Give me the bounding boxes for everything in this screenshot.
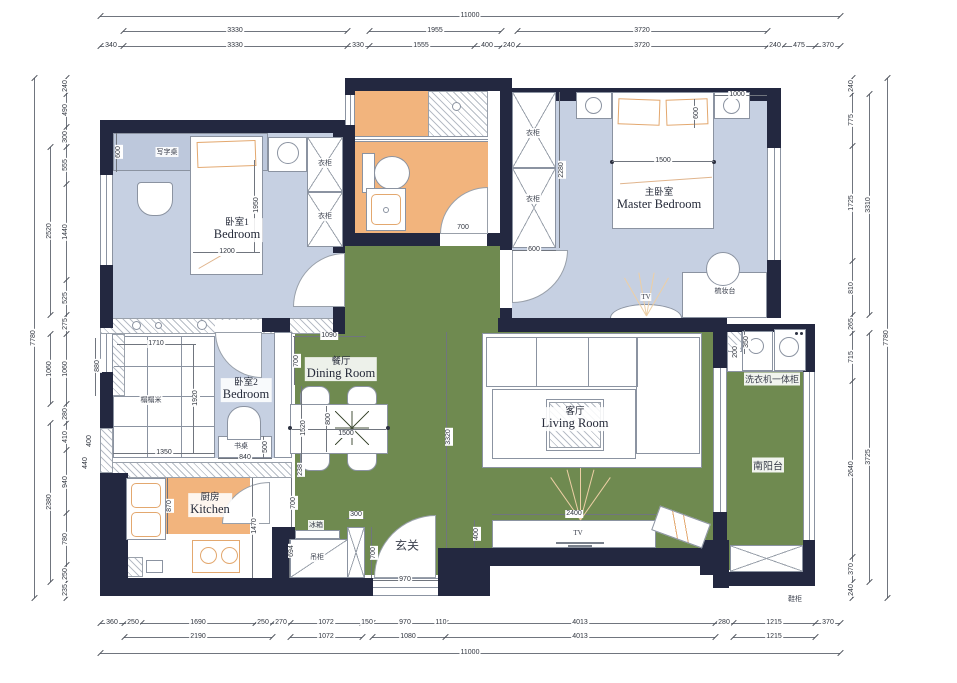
dimension-label: 440 xyxy=(82,456,90,470)
dimension-label: 11000 xyxy=(460,649,481,657)
floor-plan: 1100033301955372034033303301555400240372… xyxy=(0,0,957,683)
exterior-wall xyxy=(767,101,781,148)
dimension-label: 270 xyxy=(274,619,288,627)
room-label: 主卧室Master Bedroom xyxy=(615,188,703,212)
dimension-label: 370 xyxy=(848,562,856,576)
burner xyxy=(221,547,238,564)
window xyxy=(100,175,113,265)
dimension-label: 350 xyxy=(743,335,751,349)
room-label: 厨房Kitchen xyxy=(188,493,232,517)
sink-basin xyxy=(131,512,161,537)
pipe xyxy=(132,321,141,330)
dimension-label: 3330 xyxy=(226,42,244,50)
exterior-wall xyxy=(100,133,113,175)
burner xyxy=(200,547,217,564)
pillow xyxy=(666,98,709,125)
dimension-label: 370 xyxy=(821,619,835,627)
dimension-label: 870 xyxy=(166,499,174,513)
dimension-label: 240 xyxy=(768,42,782,50)
fixture-label: 吊柜 xyxy=(309,552,325,562)
shower-area xyxy=(428,91,488,140)
dimension-label: 800 xyxy=(325,412,333,426)
dimension-tick xyxy=(31,595,37,601)
exterior-wall xyxy=(100,372,113,428)
fixture-label: TV xyxy=(572,529,583,537)
balcony-slider-window xyxy=(713,368,727,512)
floor-hall-upper xyxy=(345,246,500,332)
room-name-en: Dining Room xyxy=(307,367,375,381)
dimension-label: 2400 xyxy=(565,510,583,518)
knob xyxy=(800,332,803,335)
exterior-wall xyxy=(100,120,345,133)
fixture-label: 冰箱 xyxy=(308,520,324,530)
fixture-label: 鞋柜 xyxy=(787,594,803,604)
dimension-tick xyxy=(47,401,53,407)
dimension-label: 200 xyxy=(732,345,740,359)
dimension-tick xyxy=(269,634,275,640)
dimension-tick xyxy=(812,634,818,640)
room-label: 餐厅Dining Room xyxy=(305,357,377,381)
dimension-tick xyxy=(884,595,890,601)
dimension-label: 970 xyxy=(398,619,412,627)
dimension-label: 780 xyxy=(62,532,70,546)
tall-cabinet xyxy=(347,527,365,578)
dimension-label: 880 xyxy=(94,359,102,373)
dim-dot xyxy=(386,426,390,430)
fridge-counter xyxy=(295,530,340,539)
dimension-label: 265 xyxy=(848,317,856,331)
dimension-label: 700 xyxy=(456,224,470,232)
sofa-chaise xyxy=(636,337,700,454)
fixture-label: TV xyxy=(640,293,651,301)
shoe-cabinet xyxy=(730,545,803,572)
window xyxy=(767,148,781,260)
dimension-label: 240 xyxy=(848,583,856,597)
dimension-label: 7780 xyxy=(883,329,891,347)
dimension-label: 694 xyxy=(288,544,296,558)
dimension-label: 238 xyxy=(297,463,305,477)
fixture-label: 玄关 xyxy=(394,537,420,554)
dimension-label: 300 xyxy=(349,511,363,519)
dimension-label: 1690 xyxy=(189,619,207,627)
dimension-label: 400 xyxy=(473,527,481,541)
dimension-label: 360 xyxy=(105,619,119,627)
room-label: 客厅Living Room xyxy=(539,407,610,431)
dimension-label: 110 xyxy=(434,619,447,627)
fixture-label: 洗衣机一体柜 xyxy=(744,373,800,386)
fixture-label: 衣柜 xyxy=(525,194,541,204)
dimension-label: 410 xyxy=(62,430,70,444)
dimension-tick xyxy=(837,620,843,626)
interior-wall xyxy=(500,91,512,250)
dimension-label: 1350 xyxy=(155,449,173,457)
dimension-label: 3320 xyxy=(445,428,453,446)
dimension-label: 1725 xyxy=(848,194,856,212)
tv xyxy=(556,542,604,544)
dimension-label: 1072 xyxy=(317,619,335,627)
dimension-label: 1470 xyxy=(251,517,259,535)
lamp xyxy=(585,97,602,114)
dimension-label: 11000 xyxy=(460,12,481,20)
dimension-label: 700 xyxy=(293,354,301,368)
dimension-label: 400 xyxy=(86,434,94,448)
room-name-en: Bedroom xyxy=(223,388,270,402)
dimension-label: 600 xyxy=(527,246,541,254)
dimension-label: 235 xyxy=(62,583,70,597)
dimension-label: 7780 xyxy=(30,329,38,347)
dimension-label: 2380 xyxy=(46,493,54,511)
dimension-label: 1500 xyxy=(654,157,672,165)
dimension-label: 525 xyxy=(62,291,70,305)
dimension-label: 2640 xyxy=(848,460,856,478)
fixture-label: 榻榻米 xyxy=(140,395,163,405)
dimension-label: 150 xyxy=(360,619,374,627)
dining-chair xyxy=(300,386,330,405)
dimension-tick xyxy=(837,43,843,49)
dimension-label: 1090 xyxy=(320,332,338,340)
dimension-label: 1520 xyxy=(300,419,308,437)
dimension-label: 275 xyxy=(62,317,70,331)
dimension-label: 1955 xyxy=(426,27,444,35)
dimension-tick xyxy=(837,650,843,656)
dimension-label: 1440 xyxy=(62,223,70,241)
kitchen-appliance xyxy=(146,560,163,573)
dimension-tick xyxy=(47,579,53,585)
dimension-label: 1072 xyxy=(317,633,335,641)
dimension-label: 970 xyxy=(398,576,412,584)
dimension-label: 1950 xyxy=(253,196,261,214)
dimension-label: 400 xyxy=(480,42,494,50)
dimension-label: 840 xyxy=(238,454,252,462)
sofa-back xyxy=(486,337,638,387)
dimension-label: 250 xyxy=(126,619,140,627)
dimension-label: 1215 xyxy=(765,633,783,641)
room-label: 卧室1Bedroom xyxy=(212,218,263,242)
window xyxy=(345,95,355,125)
interior-wall xyxy=(498,318,727,332)
dimension-label: 715 xyxy=(848,350,856,364)
pillow xyxy=(197,140,257,168)
dimension-label: 3725 xyxy=(865,448,873,466)
dimension-tick xyxy=(712,634,718,640)
balcony-wall xyxy=(713,332,727,368)
sink-basin xyxy=(131,483,161,508)
exterior-wall xyxy=(345,78,512,91)
chair xyxy=(227,406,261,440)
dimension-label: 240 xyxy=(62,79,70,93)
fixture-label: 写字桌 xyxy=(156,147,179,157)
dimension-label: 775 xyxy=(848,113,856,127)
fixture-label: 衣柜 xyxy=(317,211,333,221)
dimension-tick xyxy=(866,579,872,585)
detail-line xyxy=(588,338,589,386)
dimension-label: 280 xyxy=(62,407,70,421)
dimension-label: 300 xyxy=(62,130,70,144)
room-name-en: Kitchen xyxy=(190,503,230,517)
dimension-line xyxy=(852,78,853,598)
detail-line xyxy=(536,338,537,386)
stool xyxy=(706,252,740,286)
dimension-tick xyxy=(498,28,504,34)
room-name-en: Bedroom xyxy=(214,228,261,242)
dimension-label: 1000 xyxy=(728,91,746,99)
washer-door xyxy=(779,337,799,357)
dimension-tick xyxy=(344,28,350,34)
dimension-label: 1500 xyxy=(337,430,355,438)
dimension-tick xyxy=(359,634,365,640)
interior-wall xyxy=(333,307,345,334)
dimension-line xyxy=(66,78,67,598)
dimension-label: 1080 xyxy=(399,633,417,641)
dimension-tick xyxy=(47,312,53,318)
hatched-window xyxy=(100,428,113,473)
dimension-label: 600 xyxy=(693,106,701,120)
dimension-label: 3720 xyxy=(633,42,651,50)
lamp xyxy=(723,97,740,114)
dimension-tick xyxy=(764,28,770,34)
window xyxy=(803,372,815,540)
dimension-label: 1060 xyxy=(62,360,70,378)
plant xyxy=(335,411,369,445)
dimension-label: 1710 xyxy=(147,340,165,348)
dimension-label: 340 xyxy=(104,42,118,50)
dimension-tick xyxy=(866,312,872,318)
pipe xyxy=(197,320,207,330)
dimension-label: 280 xyxy=(717,619,731,627)
pillow xyxy=(618,98,661,125)
fixture-label: 衣柜 xyxy=(317,158,333,168)
room-name-en: Master Bedroom xyxy=(617,198,701,212)
dimension-label: 4013 xyxy=(571,619,589,627)
dimension-label: 1215 xyxy=(765,619,783,627)
dimension-label: 1200 xyxy=(218,248,236,256)
exterior-wall xyxy=(113,578,373,596)
exterior-wall xyxy=(100,265,113,328)
balcony-wall xyxy=(803,540,815,574)
dining-chair xyxy=(347,386,377,405)
dimension-label: 370 xyxy=(821,42,835,50)
dimension-label: 240 xyxy=(502,42,516,50)
dimension-label: 1060 xyxy=(46,360,54,378)
dimension-label: 2280 xyxy=(558,161,566,179)
washbasin xyxy=(277,142,299,164)
exterior-wall xyxy=(438,548,490,596)
chair xyxy=(137,182,173,216)
drain xyxy=(383,207,389,213)
detail-line xyxy=(114,366,214,367)
balcony-wall xyxy=(727,572,815,586)
interior-wall xyxy=(345,233,440,246)
dimension-tick xyxy=(837,13,843,19)
dimension-label: 330 xyxy=(351,42,365,50)
dimension-label: 490 xyxy=(62,103,70,117)
dining-chair xyxy=(347,452,377,471)
exterior-wall xyxy=(767,260,781,318)
dimension-label: 250 xyxy=(256,619,270,627)
dimension-label: 940 xyxy=(62,475,70,489)
shower-head xyxy=(452,102,461,111)
room-label: 卧室2Bedroom xyxy=(221,378,272,402)
dimension-label: 810 xyxy=(848,281,856,295)
detail-line xyxy=(114,426,214,427)
tv-base xyxy=(568,545,592,547)
dimension-line xyxy=(100,46,840,47)
toilet-bowl xyxy=(374,156,410,190)
dimension-label: 555 xyxy=(62,158,70,172)
exterior-wall xyxy=(490,548,713,566)
dimension-label: 250 xyxy=(62,567,70,581)
dimension-label: 600 xyxy=(115,145,123,159)
pipe xyxy=(155,322,162,329)
fixture-label: 衣柜 xyxy=(525,128,541,138)
shower-glass-partition xyxy=(355,136,488,142)
dimension-label: 4013 xyxy=(571,633,589,641)
dimension-label: 3720 xyxy=(633,27,651,35)
dimension-label: 3310 xyxy=(865,196,873,214)
room-name-en: Living Room xyxy=(541,417,608,431)
dimension-label: 2520 xyxy=(46,222,54,240)
dimension-label: 2190 xyxy=(189,633,207,641)
dimension-label: 1920 xyxy=(192,389,200,407)
exterior-gap xyxy=(490,564,715,598)
dimension-label: 240 xyxy=(848,79,856,93)
fixture-label: 南阳台 xyxy=(752,458,784,473)
wardrobe xyxy=(512,168,556,248)
dimension-label: 700 xyxy=(290,496,298,510)
dimension-label: 1555 xyxy=(412,42,430,50)
fixture-label: 梳妆台 xyxy=(714,286,737,296)
dimension-label: 500 xyxy=(262,440,270,454)
knob xyxy=(795,332,798,335)
detail-line xyxy=(181,337,182,457)
dimension-label: 700 xyxy=(370,546,378,560)
hatched-wall-divider xyxy=(100,462,292,478)
dimension-label: 3330 xyxy=(226,27,244,35)
fixture-label: 书桌 xyxy=(233,441,249,451)
dimension-label: 475 xyxy=(792,42,806,50)
interior-wall xyxy=(262,318,290,332)
